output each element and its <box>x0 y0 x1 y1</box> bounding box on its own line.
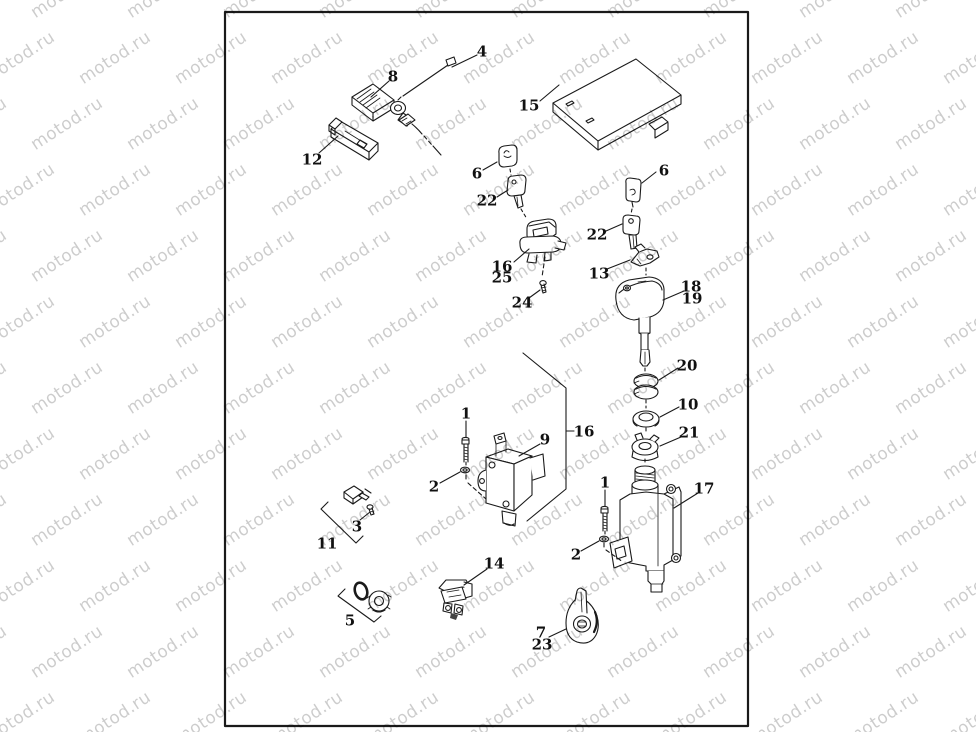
leader-3 <box>360 512 370 520</box>
part-6b-drawing <box>626 172 656 214</box>
leader-14 <box>464 569 487 585</box>
part-14-drawing <box>439 569 487 620</box>
part-11-bracket <box>321 502 363 543</box>
part-24-drawing <box>529 281 546 298</box>
diagram-border <box>225 12 748 726</box>
leader-13 <box>607 260 630 269</box>
part-17-drawing <box>610 466 698 592</box>
leader-6a <box>483 162 497 170</box>
leader-22a <box>497 190 508 197</box>
part-16-25-drawing <box>514 219 566 277</box>
part-12-drawing <box>319 118 378 160</box>
part-18-19-drawing <box>616 277 684 374</box>
part-15-drawing <box>540 59 681 150</box>
part-3-drawing <box>344 486 374 520</box>
leader-7-23 <box>549 629 566 637</box>
leader-24 <box>529 290 540 298</box>
leader-22b <box>606 224 622 231</box>
part-7-23-drawing <box>549 588 598 643</box>
part-10-drawing <box>633 407 679 434</box>
part-4-drawing <box>398 55 477 100</box>
part-6a-drawing <box>483 145 517 175</box>
pigtail-wire-drawing <box>399 114 441 155</box>
leader-18-19 <box>663 291 684 300</box>
part-22a-drawing <box>497 175 527 219</box>
leader-6b <box>642 172 656 183</box>
part-9-drawing <box>478 433 545 526</box>
parts-diagram-page: 4812156226221625241318192010211612931151… <box>0 0 976 732</box>
leader-12 <box>319 136 338 153</box>
part-5-drawing <box>338 581 391 622</box>
part-20-drawing <box>634 368 678 408</box>
part-21-drawing <box>632 433 681 465</box>
leader-9 <box>519 444 540 456</box>
exploded-parts-diagram <box>0 0 976 732</box>
part-22b-drawing <box>606 215 640 249</box>
leader-20 <box>659 368 678 380</box>
leader-2b <box>581 541 599 551</box>
leader-2a <box>440 472 460 483</box>
leader-21 <box>660 437 681 446</box>
leader-10 <box>660 407 679 417</box>
leader-15 <box>540 85 559 101</box>
